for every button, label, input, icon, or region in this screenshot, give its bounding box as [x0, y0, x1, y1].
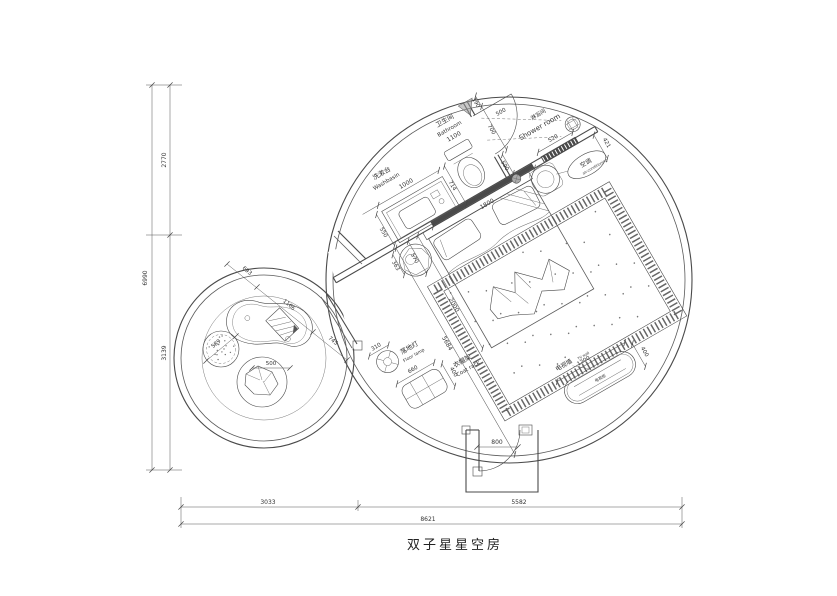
dim-washbasin-width: 1000 [398, 177, 415, 191]
round-seat [237, 357, 287, 407]
floor-lamp [373, 347, 403, 377]
table-tray [266, 308, 299, 341]
dim-lower-height: 3139 [161, 345, 168, 360]
blanket-crumple [480, 248, 579, 332]
wall-window [541, 137, 579, 163]
dim-right-width: 5582 [511, 499, 526, 506]
bed-rug [427, 182, 686, 421]
pillow-left [432, 217, 483, 262]
dim-total-height: 6990 [142, 270, 149, 285]
dim-stool-diameter: 589 [210, 338, 222, 350]
dim-seg-b: 700 [486, 124, 497, 137]
dim-ac-offset: 421 [601, 137, 611, 149]
rug-dots [450, 204, 661, 393]
dim-stool-b: 570 [409, 253, 420, 266]
coat-rack [399, 367, 449, 411]
tv-wall-label-zh: 电视墙 [554, 357, 574, 373]
lounge-furniture [203, 292, 316, 407]
pillow-right [491, 184, 542, 226]
door-handle [473, 467, 482, 476]
dim-tv-depth: 400 [639, 346, 650, 359]
dim-misc-590: 590 [499, 160, 510, 173]
dim-lamp-diameter: 310 [370, 342, 383, 353]
faucet [430, 190, 440, 199]
dim-upper-height: 2770 [161, 152, 168, 167]
dim-entry-door: 800 [491, 439, 503, 446]
floor-plan-page: 6990 2770 3139 3033 5582 8621 [0, 0, 837, 592]
dim-washbasin-depth: 550 [378, 227, 389, 240]
dim-door-swing: 500 [495, 107, 508, 118]
tv-cabinet-label: 电视柜 [593, 372, 606, 383]
dim-stool-a: 363 [390, 260, 401, 273]
dotted-stool [203, 331, 239, 367]
dim-coat-width: 660 [407, 365, 420, 376]
washbasin-counter [382, 176, 461, 242]
dim-bed-diagonal: 5684 [440, 335, 454, 352]
floor-plan: 6990 2770 3139 3033 5582 8621 [0, 0, 837, 592]
dim-window-width: 520 [547, 133, 560, 144]
dim-left-width: 3033 [260, 499, 275, 506]
left-dimensions: 6990 2770 3139 [142, 82, 182, 472]
bottom-dimensions: 3033 5582 8621 [178, 497, 684, 528]
bed [423, 172, 596, 349]
basin [397, 196, 436, 230]
tv-cabinet: 电视柜 [560, 347, 641, 409]
plan-title: 双子星星空房 [407, 537, 503, 553]
lounge-inner-wall [181, 275, 347, 441]
passage [321, 231, 398, 350]
dim-chain-a: 693 [241, 266, 253, 278]
dim-total-width: 8621 [420, 516, 435, 523]
dim-seat-diameter: 500 [266, 361, 277, 367]
entrance: 800 [462, 422, 538, 492]
rug-fringe-border [436, 190, 679, 413]
sliding-door-band [430, 163, 534, 226]
room-shells [174, 97, 692, 463]
